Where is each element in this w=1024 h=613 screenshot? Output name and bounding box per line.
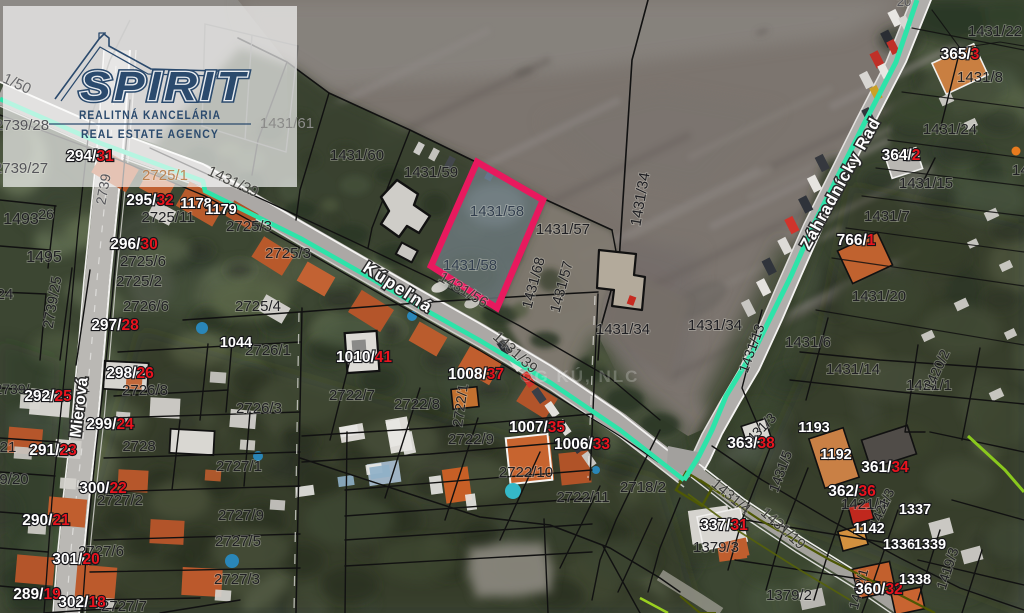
svg-text:362/36: 362/36: [828, 483, 876, 500]
svg-text:1179: 1179: [205, 202, 236, 218]
svg-text:2722/9: 2722/9: [448, 431, 494, 448]
svg-text:1192: 1192: [820, 447, 851, 463]
svg-text:2739/28: 2739/28: [0, 117, 49, 134]
svg-text:1431/59: 1431/59: [404, 164, 458, 181]
svg-text:1379/3: 1379/3: [693, 539, 739, 556]
svg-text:1142: 1142: [853, 521, 884, 537]
svg-text:26: 26: [38, 206, 54, 222]
svg-text:296/30: 296/30: [110, 236, 157, 253]
svg-text:2727/5: 2727/5: [215, 533, 261, 550]
svg-text:1431/20: 1431/20: [852, 288, 906, 305]
svg-text:2727/7: 2727/7: [101, 598, 147, 613]
svg-text:2718/2: 2718/2: [620, 479, 666, 496]
svg-text:1008/37: 1008/37: [448, 366, 504, 383]
svg-text:297/28: 297/28: [91, 317, 139, 334]
svg-text:1431/57: 1431/57: [536, 221, 590, 238]
svg-text:290/21: 290/21: [22, 512, 70, 529]
svg-text:2727/1: 2727/1: [216, 458, 262, 475]
svg-text:1339: 1339: [914, 537, 946, 553]
svg-text:361/34: 361/34: [861, 459, 909, 476]
svg-text:2726/8: 2726/8: [122, 382, 168, 399]
svg-text:2722/10: 2722/10: [499, 464, 553, 481]
svg-text:1431/22: 1431/22: [968, 23, 1022, 40]
svg-text:9/20: 9/20: [0, 471, 29, 488]
svg-text:2722/7: 2722/7: [329, 387, 375, 404]
svg-text:2725/2: 2725/2: [116, 273, 162, 290]
svg-text:2722/11: 2722/11: [556, 489, 609, 506]
svg-text:1431/6: 1431/6: [785, 334, 831, 351]
svg-text:2727/3: 2727/3: [214, 571, 260, 588]
svg-text:292/25: 292/25: [24, 388, 72, 405]
svg-text:1193: 1193: [798, 420, 829, 436]
svg-text:295/32: 295/32: [126, 192, 173, 209]
svg-text:1431/8: 1431/8: [957, 69, 1003, 86]
svg-text:1431/14: 1431/14: [826, 361, 880, 378]
svg-text:2739/27: 2739/27: [0, 160, 48, 177]
svg-text:1431/24: 1431/24: [923, 121, 977, 138]
svg-text:2725/3: 2725/3: [265, 245, 311, 262]
svg-text:1431/61: 1431/61: [260, 115, 314, 132]
svg-text:©G KÚ, NLC: ©G KÚ, NLC: [520, 367, 639, 386]
svg-text:1044: 1044: [220, 335, 252, 351]
svg-text:2728: 2728: [122, 438, 155, 455]
svg-text:1493: 1493: [3, 211, 39, 228]
svg-text:1431/34: 1431/34: [596, 321, 650, 338]
svg-text:1337: 1337: [899, 502, 931, 518]
svg-text:1010/41: 1010/41: [336, 349, 392, 366]
svg-text:1338: 1338: [899, 572, 931, 588]
svg-text:1495: 1495: [26, 249, 62, 266]
svg-text:1431/34: 1431/34: [688, 317, 742, 334]
svg-text:299/24: 299/24: [86, 416, 134, 433]
svg-text:2726/6: 2726/6: [123, 298, 169, 315]
svg-text:365/3: 365/3: [941, 46, 980, 63]
svg-text:289/19: 289/19: [13, 586, 61, 603]
svg-text:SPIRIT: SPIRIT: [80, 63, 248, 109]
svg-text:300/22: 300/22: [79, 480, 126, 497]
svg-text:363/38: 363/38: [727, 435, 775, 452]
svg-text:1007/35: 1007/35: [509, 419, 565, 436]
svg-text:298/26: 298/26: [106, 365, 154, 382]
svg-text:2725/4: 2725/4: [235, 298, 281, 315]
svg-text:1006/33: 1006/33: [554, 436, 610, 453]
svg-text:1431/7: 1431/7: [864, 208, 910, 225]
svg-text:REALITNÁ KANCELÁRIA: REALITNÁ KANCELÁRIA: [79, 109, 221, 122]
svg-text:24: 24: [0, 286, 13, 303]
svg-text:2722/8: 2722/8: [394, 396, 440, 413]
svg-text:1431/15: 1431/15: [899, 175, 953, 192]
svg-text:1431/58: 1431/58: [443, 257, 497, 274]
svg-text:364/2: 364/2: [882, 147, 921, 164]
svg-text:301/20: 301/20: [52, 551, 99, 568]
svg-text:2725/3: 2725/3: [226, 218, 272, 235]
svg-text:1431/58: 1431/58: [470, 203, 524, 220]
svg-text:291/23: 291/23: [29, 442, 77, 459]
svg-text:302/18: 302/18: [58, 594, 106, 611]
svg-text:21: 21: [0, 439, 16, 456]
svg-text:766/1: 766/1: [837, 232, 876, 249]
svg-text:294/31: 294/31: [66, 148, 114, 165]
svg-text:20: 20: [897, 0, 911, 9]
svg-text:142: 142: [1012, 162, 1024, 179]
svg-text:2725/6: 2725/6: [120, 253, 166, 270]
svg-text:1379/2: 1379/2: [766, 587, 812, 604]
svg-text:2726/3: 2726/3: [236, 400, 282, 417]
svg-text:1336: 1336: [883, 537, 915, 553]
svg-text:2727/9: 2727/9: [218, 507, 264, 524]
svg-text:REAL ESTATE AGENCY: REAL ESTATE AGENCY: [81, 129, 219, 141]
svg-text:337/31: 337/31: [700, 517, 748, 534]
svg-text:360/32: 360/32: [855, 581, 902, 598]
svg-text:1431/60: 1431/60: [330, 147, 384, 164]
svg-text:2725/1: 2725/1: [142, 167, 188, 184]
